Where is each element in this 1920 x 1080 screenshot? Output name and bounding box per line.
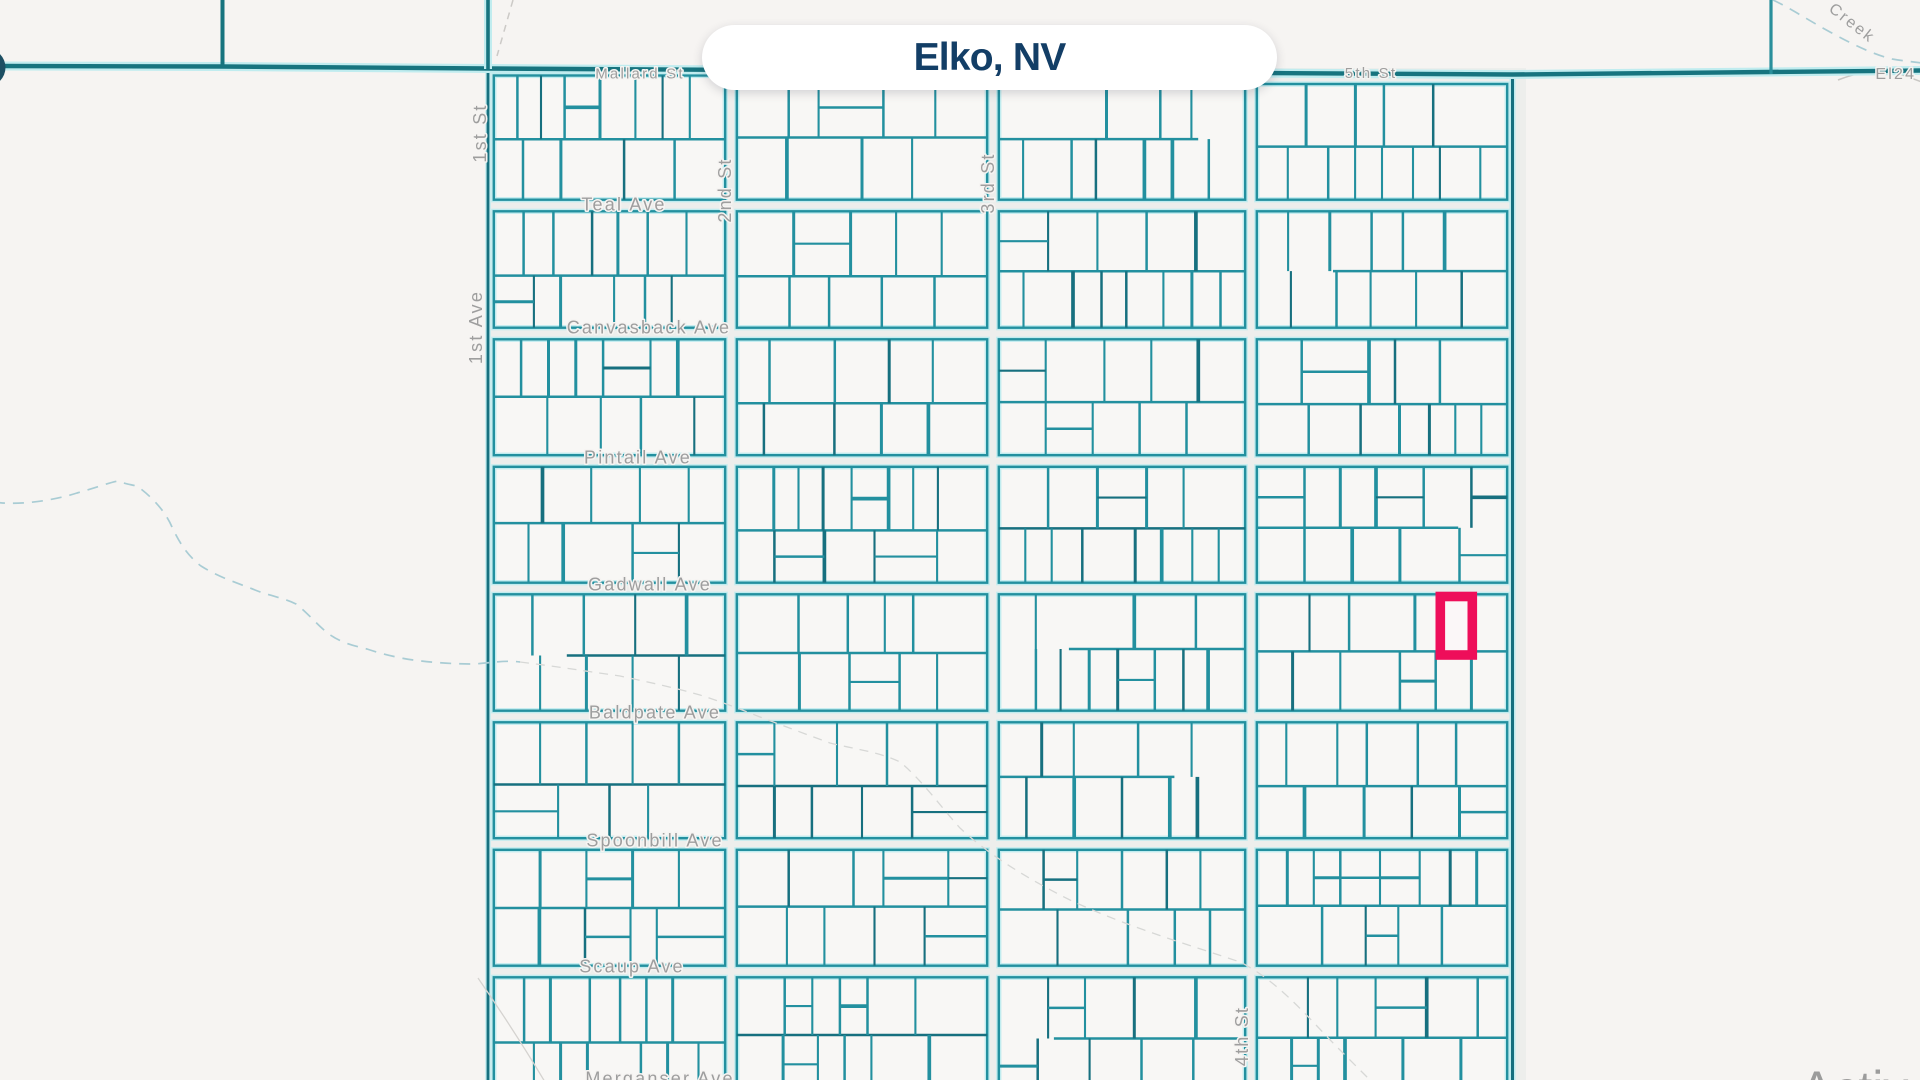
svg-text:Gadwall Ave: Gadwall Ave xyxy=(588,575,712,595)
svg-text:Pintail Ave: Pintail Ave xyxy=(584,448,692,468)
svg-text:Teal Ave: Teal Ave xyxy=(581,195,666,215)
svg-text:Baldpate Ave: Baldpate Ave xyxy=(589,703,721,723)
svg-text:Scaup Ave: Scaup Ave xyxy=(579,957,685,977)
svg-text:Mallard St: Mallard St xyxy=(595,66,685,83)
svg-text:El24 R: El24 R xyxy=(1875,66,1920,83)
svg-text:1st Ave: 1st Ave xyxy=(466,290,486,364)
svg-text:1st St: 1st St xyxy=(470,103,490,162)
svg-text:5th St: 5th St xyxy=(1345,65,1397,82)
svg-text:Merganser Ave: Merganser Ave xyxy=(585,1069,734,1080)
svg-text:4th St: 4th St xyxy=(1232,1006,1252,1066)
svg-text:Activ: Activ xyxy=(1800,1061,1908,1080)
svg-text:3rd St: 3rd St xyxy=(978,152,998,213)
svg-text:Spoonbill Ave: Spoonbill Ave xyxy=(586,831,723,851)
svg-text:2nd St: 2nd St xyxy=(715,157,735,222)
svg-text:Canvasback Ave: Canvasback Ave xyxy=(567,318,732,338)
